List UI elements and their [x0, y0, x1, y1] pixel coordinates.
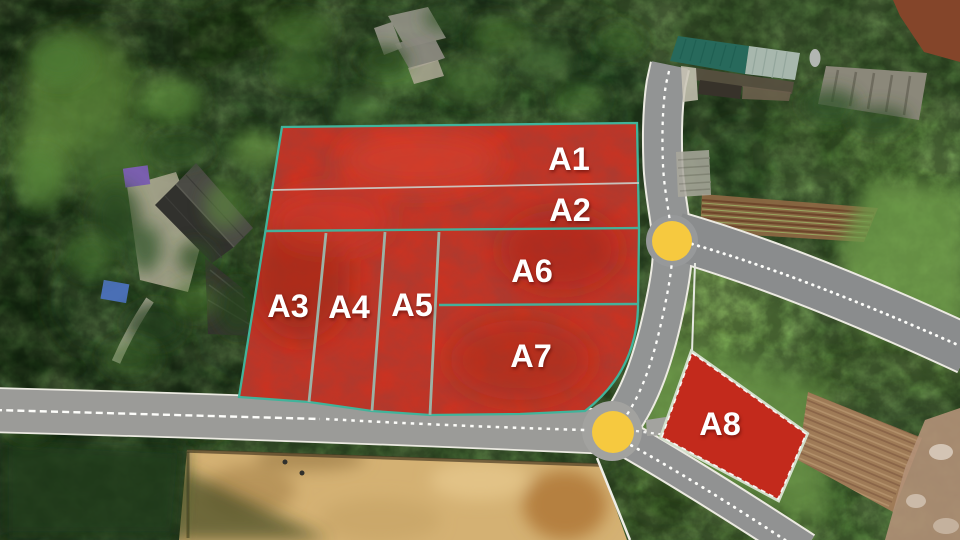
svg-text:A3: A3 — [267, 288, 309, 324]
svg-text:A2: A2 — [549, 192, 591, 228]
svg-text:A4: A4 — [328, 289, 370, 325]
svg-text:A7: A7 — [510, 338, 552, 374]
svg-text:A1: A1 — [548, 141, 590, 177]
svg-text:A8: A8 — [699, 406, 741, 442]
svg-text:A6: A6 — [511, 253, 553, 289]
svg-text:A5: A5 — [391, 287, 433, 323]
